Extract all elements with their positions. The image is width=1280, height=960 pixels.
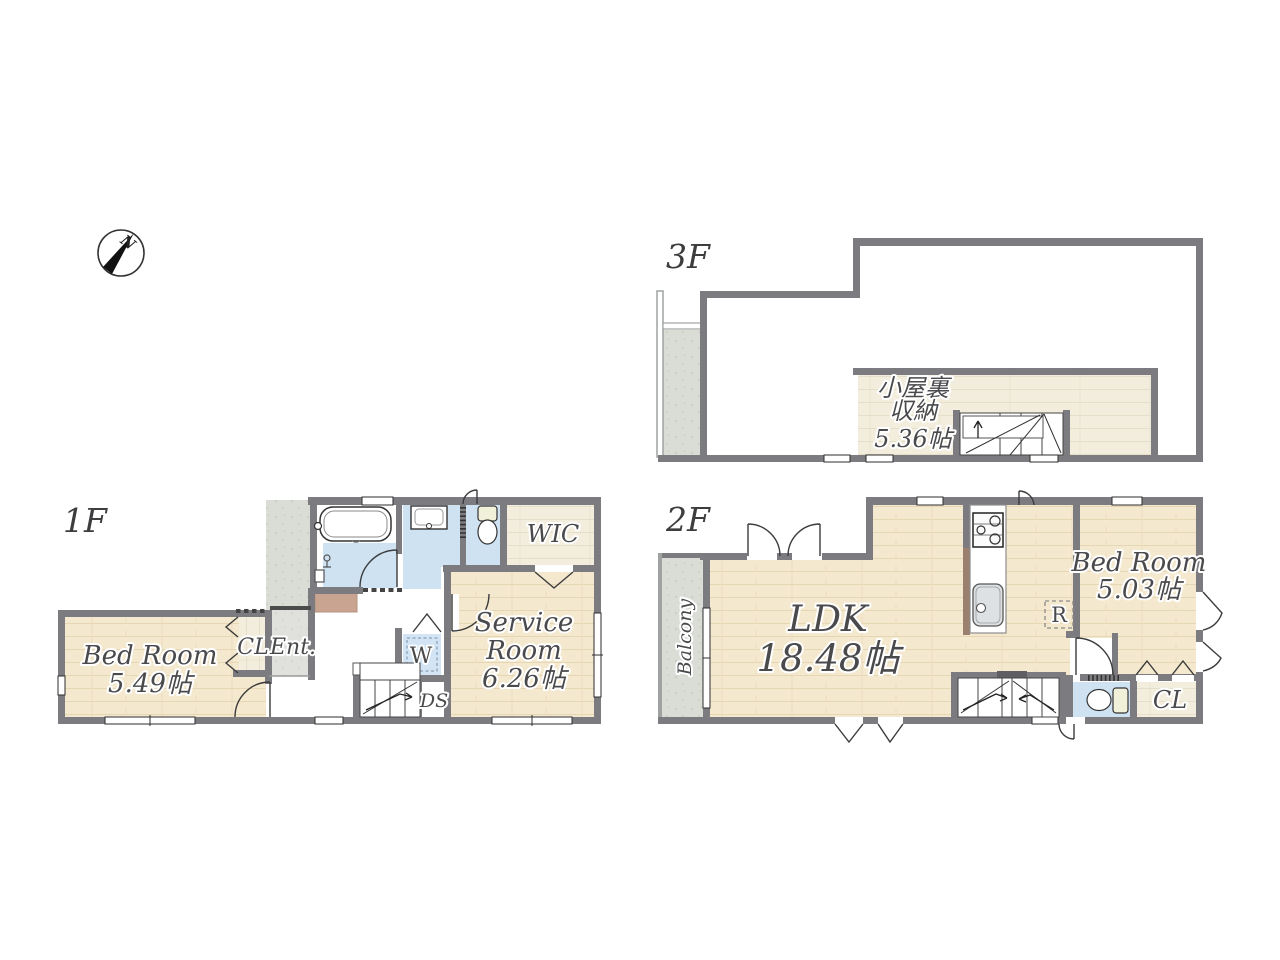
floor-3f-label: 3F bbox=[666, 237, 711, 276]
service-room-label-1: Service bbox=[475, 608, 574, 638]
porch-floor bbox=[266, 500, 312, 610]
bedroom-2f-size: 5.03帖 bbox=[1097, 575, 1185, 605]
ldk-label: LDK bbox=[787, 599, 870, 640]
wic-label: WIC bbox=[527, 520, 580, 548]
attic-storage-label-2: 収納 bbox=[889, 397, 939, 425]
floor-1f: 1F bbox=[58, 490, 603, 726]
service-room-label-2: Room bbox=[485, 636, 562, 666]
closet-2f-label: CL bbox=[1153, 686, 1187, 714]
bedroom-1f-label: Bed Room bbox=[82, 641, 218, 671]
washer-label: W bbox=[410, 644, 433, 669]
bathtub-faucet-icon bbox=[315, 523, 322, 530]
service-door-opening bbox=[452, 594, 459, 632]
bedroom-1f-size: 5.49帖 bbox=[108, 669, 196, 699]
wic-door-opening bbox=[535, 565, 573, 572]
kitchen bbox=[963, 505, 1006, 635]
bedroom-casement-window-2 bbox=[1203, 642, 1221, 671]
floor-2f: 2F bbox=[658, 491, 1222, 742]
balcony-3f-railing-top bbox=[663, 323, 704, 329]
washroom-floor-lower bbox=[403, 565, 441, 589]
closet-1f-label: CL bbox=[237, 635, 268, 660]
balcony-3f-railing bbox=[657, 291, 663, 457]
floor-plan-drawing: N 3F bbox=[0, 0, 1280, 960]
ldk-awning-window-1 bbox=[835, 724, 863, 742]
stair-wall-cap bbox=[353, 663, 360, 675]
bedroom-casement-window-1 bbox=[1203, 592, 1222, 630]
attic-storage-size: 5.36帖 bbox=[874, 425, 954, 453]
floor-3f: 3F bbox=[657, 237, 1203, 462]
balcony-label: Balcony bbox=[674, 599, 696, 677]
service-room-size: 6.26帖 bbox=[482, 664, 570, 694]
duct-space-label: DS bbox=[419, 690, 448, 712]
ldk-awning-window-2 bbox=[878, 724, 903, 742]
stair-rail-2f bbox=[997, 671, 1027, 678]
toilet-1f-fixture bbox=[478, 506, 497, 544]
floor-2f-label: 2F bbox=[665, 500, 711, 539]
kitchen-sink-icon bbox=[973, 584, 1003, 626]
toilet-2f-window-arc bbox=[1059, 724, 1074, 739]
balcony-sliding-door bbox=[703, 608, 710, 708]
stove-icon bbox=[973, 513, 1003, 547]
kitchen-counter-back bbox=[963, 548, 970, 635]
washer-closet-bifold-mark bbox=[413, 614, 441, 632]
floor-plan-page: N 3F bbox=[0, 0, 1280, 960]
stairs-2f bbox=[958, 678, 1059, 717]
stairs-1f bbox=[360, 663, 420, 717]
compass: N bbox=[98, 230, 144, 276]
terrace-door-right-arc bbox=[788, 524, 820, 556]
refrigerator-label: R bbox=[1051, 603, 1068, 627]
floor-1f-label: 1F bbox=[63, 501, 108, 540]
vanity-sink bbox=[411, 506, 447, 529]
entrance-label: Ent. bbox=[269, 635, 316, 660]
ldk-size: 18.48帖 bbox=[757, 637, 905, 680]
terrace-door-left-arc bbox=[748, 524, 780, 556]
balcony-3f-floor bbox=[662, 330, 704, 456]
stairs-3f bbox=[960, 413, 1063, 455]
bathtub bbox=[315, 507, 392, 543]
bedroom-2f-label: Bed Room bbox=[1071, 548, 1207, 578]
